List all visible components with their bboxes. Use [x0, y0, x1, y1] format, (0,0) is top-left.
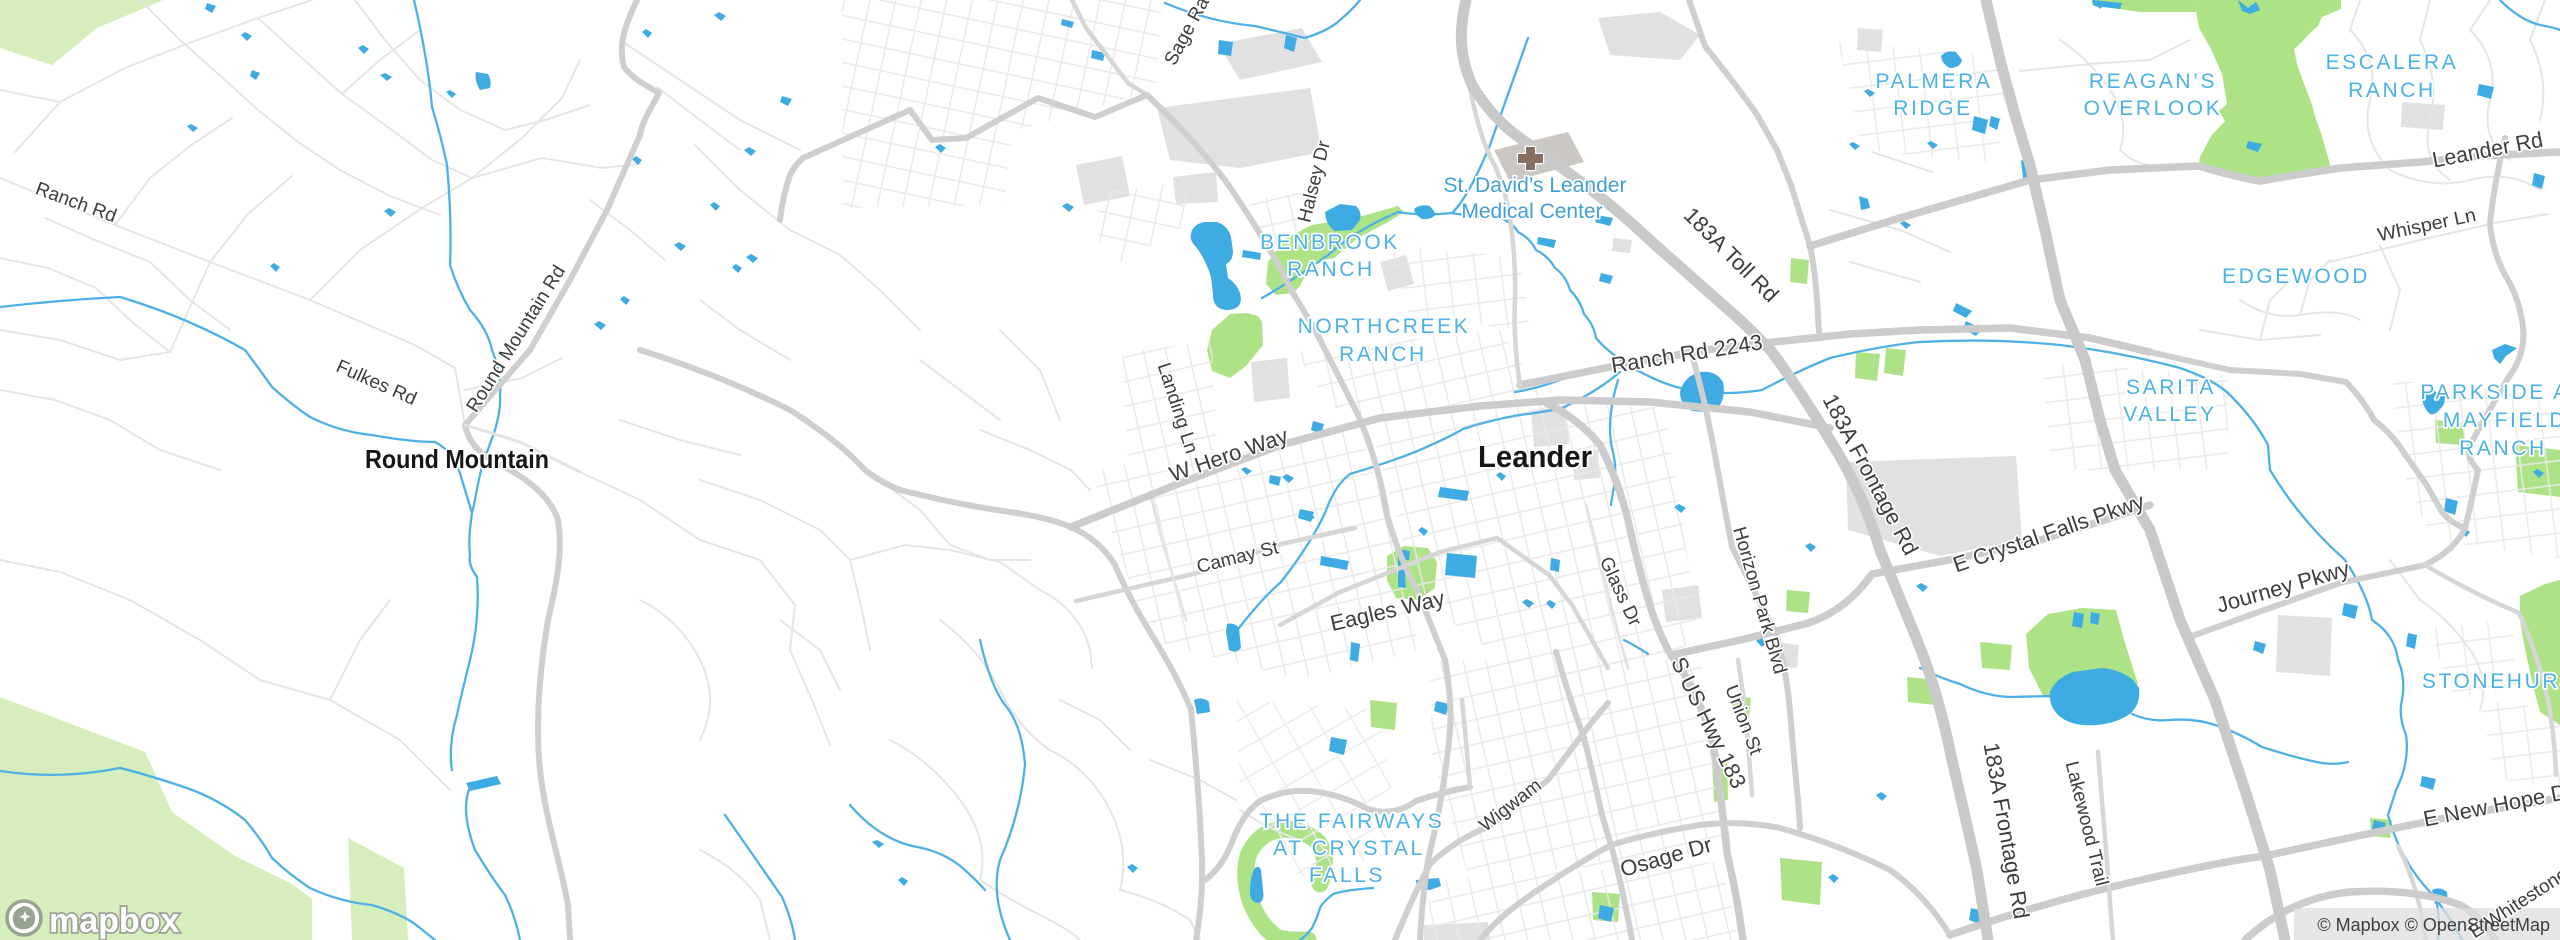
svg-text:Medical Center: Medical Center: [1461, 200, 1602, 223]
svg-text:Leander: Leander: [1478, 439, 1592, 474]
svg-text:RANCH: RANCH: [2348, 79, 2436, 102]
svg-text:NORTHCREEK: NORTHCREEK: [1298, 315, 1471, 338]
svg-text:VALLEY: VALLEY: [2123, 403, 2216, 426]
svg-text:RANCH: RANCH: [2459, 437, 2547, 460]
svg-text:Round Mountain: Round Mountain: [365, 444, 549, 474]
svg-text:PARKSIDE AT: PARKSIDE AT: [2420, 381, 2560, 404]
svg-text:ESCALERA: ESCALERA: [2326, 51, 2459, 74]
svg-text:STONEHURST: STONEHURST: [2422, 670, 2560, 693]
svg-text:St. David’s Leander: St. David’s Leander: [1444, 174, 1627, 197]
svg-text:AT CRYSTAL: AT CRYSTAL: [1273, 837, 1425, 860]
svg-text:mapbox: mapbox: [49, 902, 179, 940]
svg-text:REAGAN’S: REAGAN’S: [2089, 70, 2217, 93]
svg-text:RIDGE: RIDGE: [1893, 97, 1973, 120]
svg-text:MAYFIELD: MAYFIELD: [2443, 409, 2560, 432]
svg-text:SARITA: SARITA: [2126, 376, 2216, 399]
svg-text:FALLS: FALLS: [1309, 864, 1385, 887]
svg-text:BENBROOK: BENBROOK: [1260, 231, 1400, 254]
svg-text:PALMERA: PALMERA: [1875, 70, 1992, 93]
svg-text:© Mapbox © OpenStreetMap: © Mapbox © OpenStreetMap: [2317, 915, 2550, 935]
svg-text:RANCH: RANCH: [1339, 343, 1427, 366]
svg-text:THE FAIRWAYS: THE FAIRWAYS: [1260, 810, 1445, 833]
svg-text:EDGEWOOD: EDGEWOOD: [2222, 265, 2370, 288]
svg-text:RANCH: RANCH: [1287, 258, 1375, 281]
svg-text:OVERLOOK: OVERLOOK: [2084, 97, 2223, 120]
